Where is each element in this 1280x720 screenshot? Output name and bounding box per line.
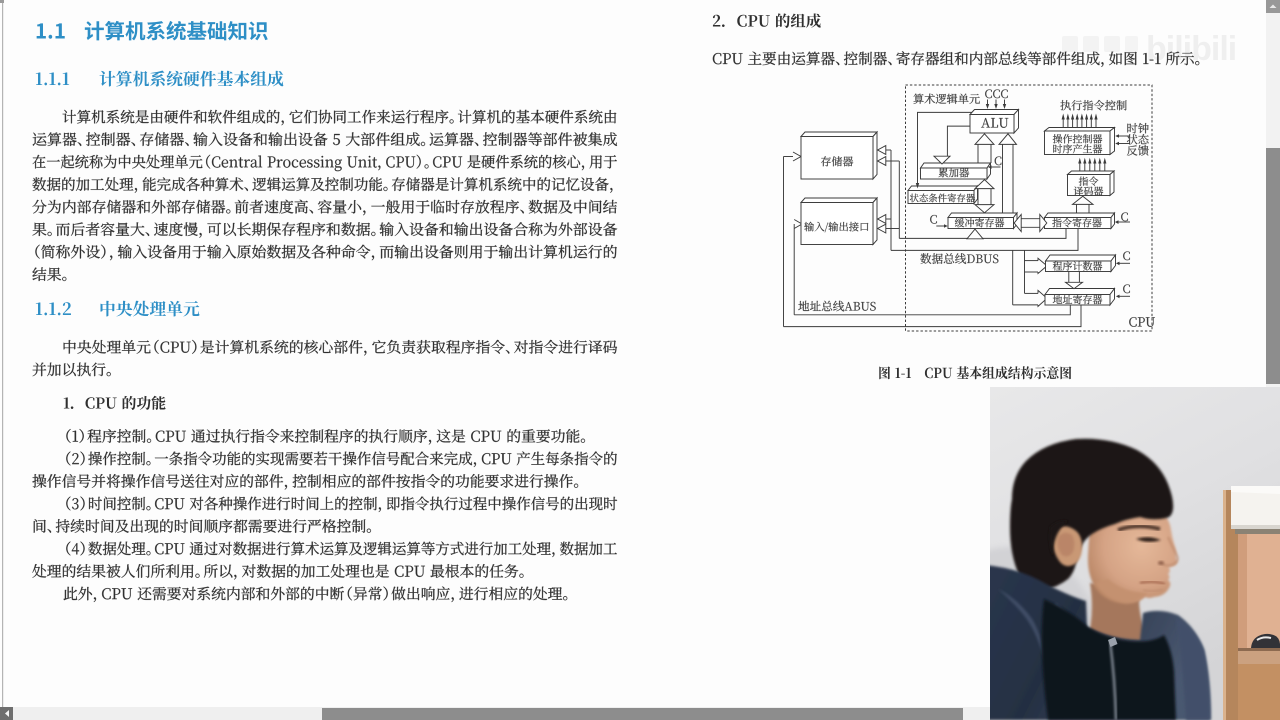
svg-text:bilibili: bilibili [1146, 30, 1236, 68]
